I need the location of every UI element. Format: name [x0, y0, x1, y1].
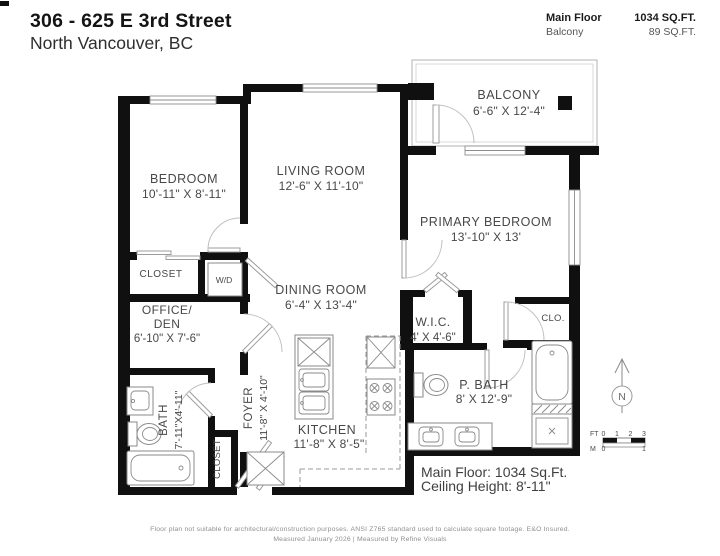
wall — [272, 487, 414, 495]
wall — [400, 146, 436, 155]
wall — [243, 84, 303, 92]
disclaimer-line2: Measured January 2026 | Measured by Refi… — [0, 535, 720, 545]
compass-north-letter: N — [618, 391, 626, 403]
room-dims-bath: 7'-11"X4'-11" — [173, 390, 185, 449]
room-label-foyer-closet: CLOSET — [212, 439, 223, 479]
closet-slider — [166, 256, 200, 260]
fridge-icon — [247, 452, 284, 485]
room-label-kitchen: KITCHEN — [298, 423, 356, 437]
wall — [118, 487, 237, 495]
toilet-tank — [414, 373, 423, 397]
kitchen-island — [295, 335, 333, 419]
walls — [0, 1, 599, 495]
bathtub-icon — [127, 451, 194, 485]
bath-toilet-icon — [128, 422, 161, 446]
scale-bar-m-row — [603, 443, 645, 447]
room-label-office-line1: OFFICE/ — [142, 303, 192, 317]
scale-bar-segment — [603, 438, 617, 443]
room-dims-pbath: 8' X 12'-9" — [456, 392, 512, 406]
scale-ft-tick: 3 — [642, 431, 646, 438]
room-label-bath: BATH — [158, 404, 170, 436]
room-label-laundry: W/D — [216, 275, 233, 285]
scale-m-label: M — [590, 446, 596, 453]
room-label-closet: CLOSET — [139, 269, 182, 280]
scale-ft-tick: 0 — [602, 431, 606, 438]
wall — [118, 368, 215, 375]
room-label-dining-room: DINING ROOM — [275, 283, 367, 297]
scale-m-tick: 1 — [642, 446, 646, 453]
compass-icon: N — [612, 359, 632, 413]
room-dims-kitchen: 11'-8" X 8'-5" — [293, 437, 364, 451]
wall — [400, 84, 408, 240]
double-vanity-icon — [408, 423, 492, 450]
room-dims-living-room: 12'-6" X 11'-10" — [279, 179, 364, 193]
room-label-primary-bedroom: PRIMARY BEDROOM — [420, 215, 552, 229]
room-dims-office: 6'-10" X 7'-6" — [134, 333, 200, 345]
room-dims-dining-room: 6'-4" X 13'-4" — [285, 298, 357, 312]
scan-mark — [0, 1, 9, 6]
pbath-tub-icon — [532, 341, 572, 404]
room-label-pbath: P. BATH — [459, 378, 509, 392]
primary-door-arc — [404, 240, 442, 278]
disclaimer: Floor plan not suitable for architectura… — [0, 525, 720, 544]
toilet-tank — [128, 422, 137, 446]
room-dims-foyer: 11'-8" X 4'-10" — [258, 375, 270, 441]
room-label-living-room: LIVING ROOM — [277, 164, 366, 178]
cooktop-icon — [367, 379, 395, 415]
scale-ft-tick: 1 — [615, 431, 619, 438]
scale-bar: FT 0 1 2 3 M 0 1 — [590, 431, 646, 453]
tub-outline — [127, 451, 194, 485]
bath-door-leaf — [186, 391, 212, 417]
bedroom-door-leaf — [208, 248, 240, 252]
bath-sink-icon — [127, 387, 153, 415]
scale-ft-label: FT — [590, 431, 599, 438]
wall — [118, 252, 137, 260]
wall — [413, 343, 487, 350]
wall — [231, 430, 238, 488]
clo-door-arc — [506, 302, 544, 340]
room-label-balcony: BALCONY — [477, 88, 540, 102]
closet-slider — [137, 251, 171, 255]
room-label-foyer: FOYER — [243, 387, 255, 429]
room-dims-bedroom: 10'-11" X 8'-11" — [142, 187, 226, 201]
scale-m-tick: 0 — [602, 446, 606, 453]
pbath-hatch-strip — [532, 404, 572, 414]
scale-bar-segment — [631, 438, 645, 443]
room-label-wic: W.I.C. — [415, 315, 450, 329]
wall — [240, 352, 248, 375]
wall — [463, 290, 472, 350]
room-dims-wic: 4' X 4'-6" — [410, 332, 456, 344]
laundry-door-leaf — [245, 258, 277, 288]
shower-icon — [532, 414, 572, 448]
floor-plan: BALCONY 6'-6" X 12'-4" BEDROOM 10'-11" X… — [0, 0, 720, 556]
room-dims-balcony: 6'-6" X 12'-4" — [473, 104, 545, 118]
clo-door-leaf — [504, 302, 508, 340]
room-label-clo: CLO. — [541, 313, 564, 324]
balcony-door-arc — [436, 105, 474, 143]
wall — [208, 375, 215, 383]
wall — [515, 297, 569, 304]
scale-ft-tick: 2 — [629, 431, 633, 438]
wall — [118, 96, 150, 104]
bedroom-door-arc — [208, 218, 240, 250]
wall — [408, 83, 434, 100]
room-dims-primary-bedroom: 13'-10" X 13' — [451, 230, 521, 244]
wall — [525, 146, 599, 155]
primary-door-leaf — [402, 240, 406, 278]
disclaimer-line1: Floor plan not suitable for architectura… — [0, 525, 720, 535]
pbath-toilet-icon — [414, 373, 448, 397]
floor-plan-page: 306 - 625 E 3rd Street North Vancouver, … — [0, 0, 720, 556]
balcony-door-leaf — [433, 105, 439, 143]
summary-ceiling: Ceiling Height: 8'-11" — [421, 478, 551, 494]
office-door-leaf — [243, 324, 273, 354]
kitchen-oven-icon — [367, 337, 395, 368]
balcony-column — [558, 96, 572, 110]
room-label-office-line2: DEN — [154, 317, 181, 331]
wall — [240, 96, 248, 224]
wall — [400, 290, 425, 297]
room-label-bedroom: BEDROOM — [150, 172, 218, 186]
